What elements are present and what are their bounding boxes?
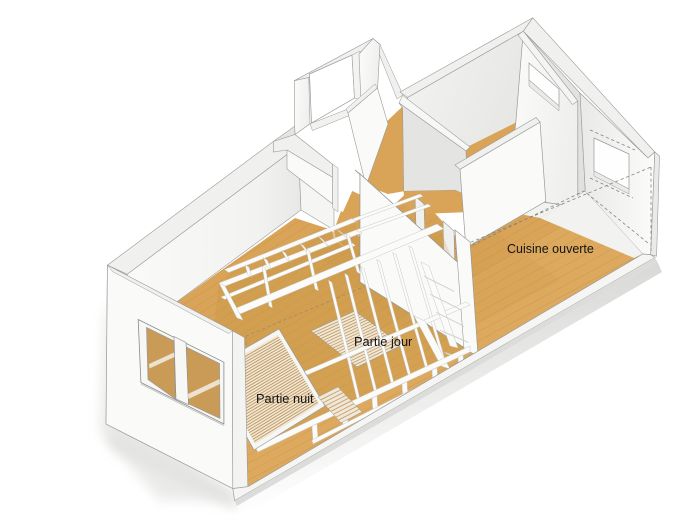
svg-text:Partie nuit: Partie nuit xyxy=(256,391,314,406)
svg-text:Partie jour: Partie jour xyxy=(354,334,413,349)
svg-text:Cuisine ouverte: Cuisine ouverte xyxy=(507,242,594,256)
